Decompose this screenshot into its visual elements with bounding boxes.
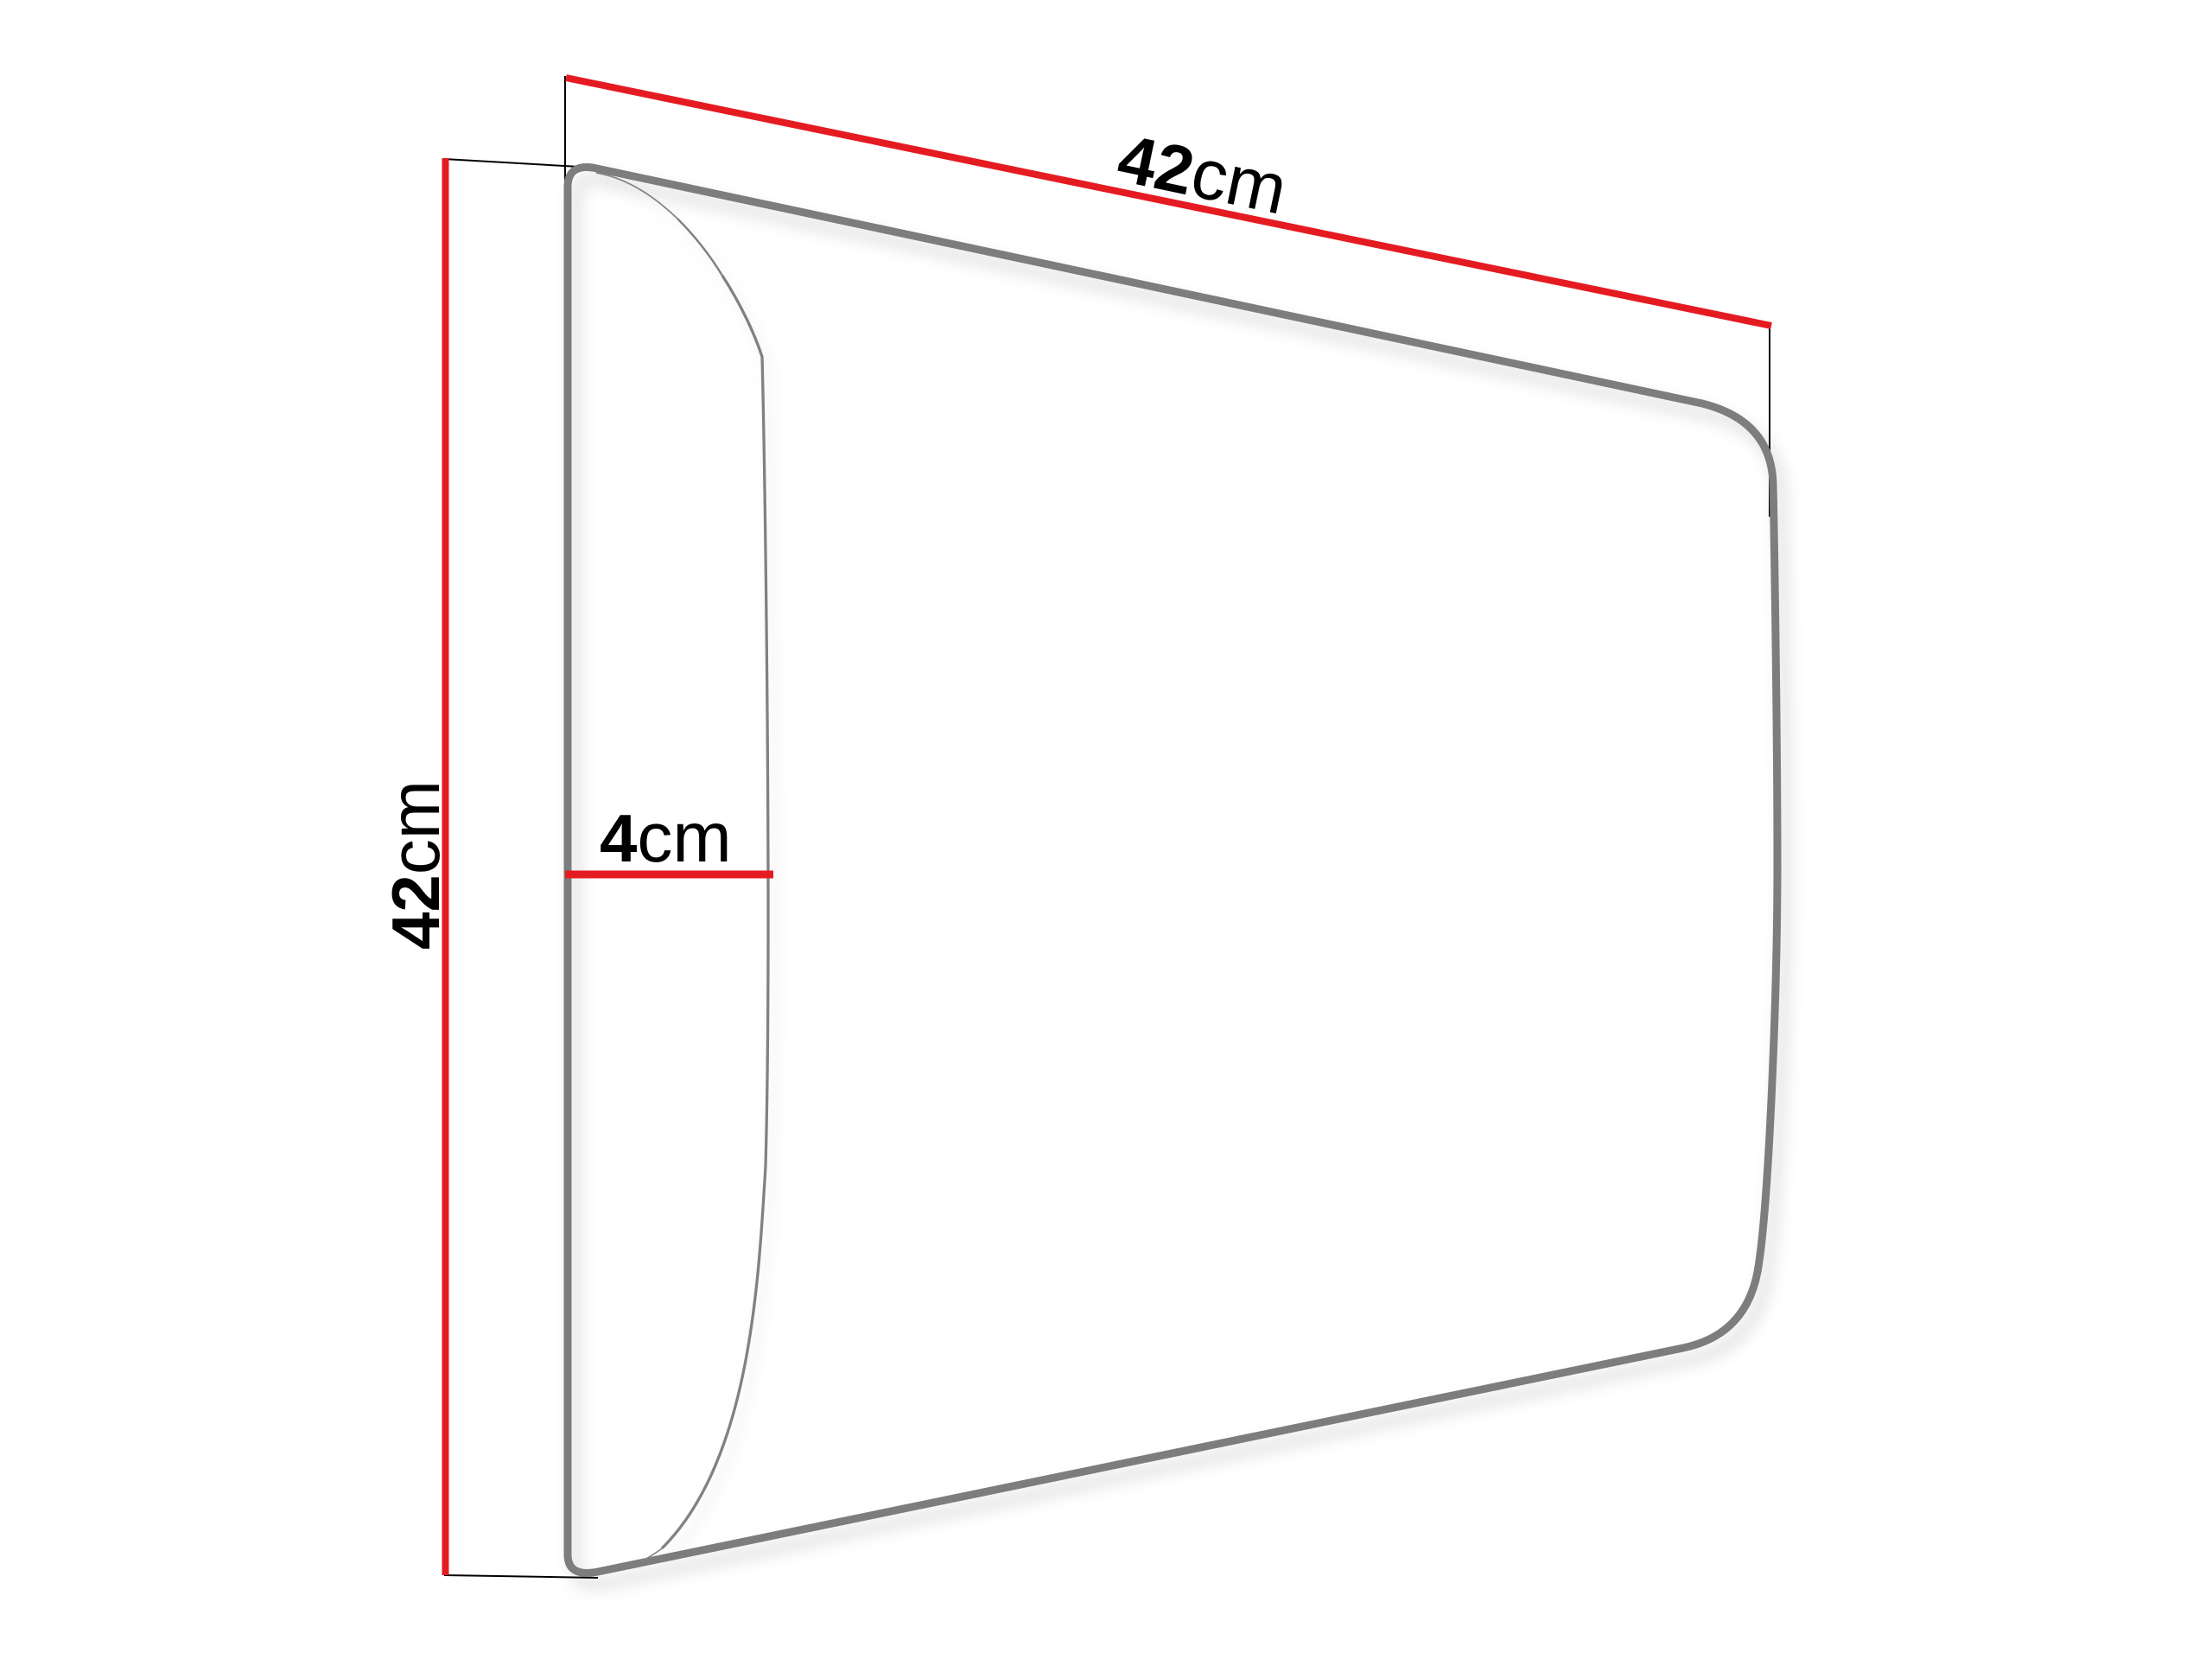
- svg-text:4cm: 4cm: [600, 798, 732, 877]
- svg-text:42cm: 42cm: [376, 780, 454, 950]
